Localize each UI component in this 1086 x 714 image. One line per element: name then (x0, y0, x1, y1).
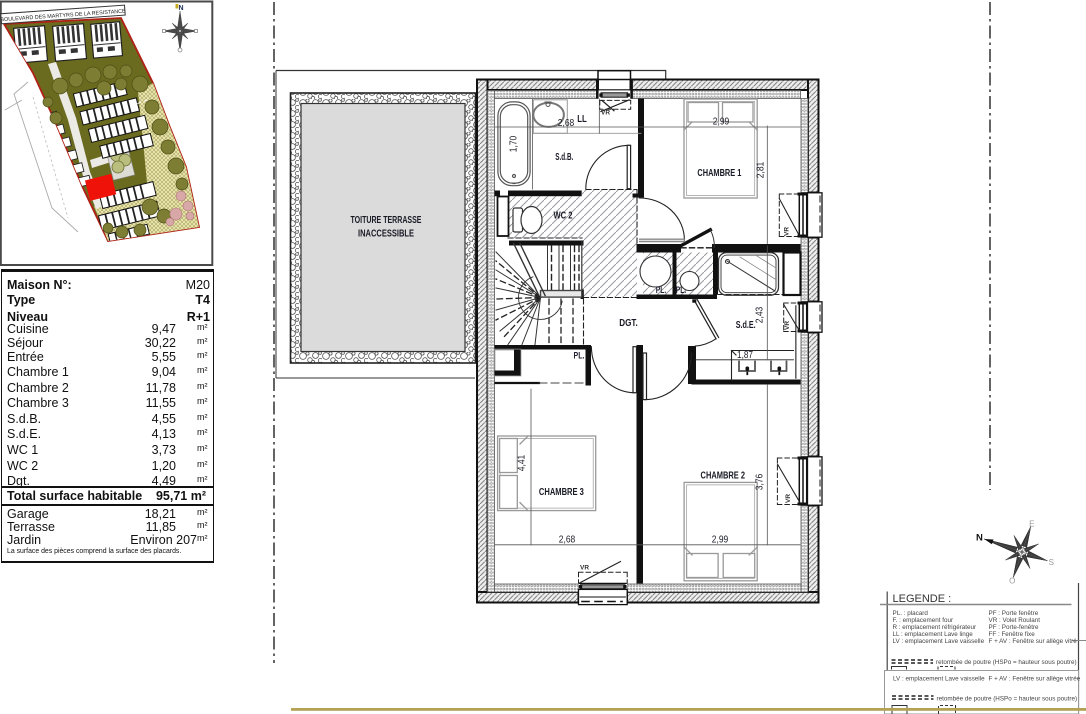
svg-text:FF : Fenêtre fixe: FF : Fenêtre fixe (989, 631, 1036, 638)
svg-text:PF : Porte-fenêtre: PF : Porte-fenêtre (989, 624, 1040, 631)
svg-text:retombée de poutre (HSPo = hau: retombée de poutre (HSPo = hauteur sous … (936, 659, 1077, 666)
svg-text:INACCESSIBLE: INACCESSIBLE (358, 229, 414, 240)
svg-text:F + AV : Fenêtre sur allège vi: F + AV : Fenêtre sur allège vitré (989, 638, 1078, 645)
svg-text:N: N (976, 532, 983, 543)
svg-text:LV : emplacement Lave vaissell: LV : emplacement Lave vaisselle (893, 676, 985, 683)
svg-text:PF : Porte fenêtre: PF : Porte fenêtre (989, 610, 1039, 617)
svg-text:R : emplacement réfrigérateur: R : emplacement réfrigérateur (893, 624, 977, 631)
svg-text:4,41: 4,41 (516, 455, 528, 472)
svg-text:O: O (1009, 576, 1015, 585)
svg-text:2,68: 2,68 (558, 117, 575, 129)
svg-text:2,99: 2,99 (712, 533, 729, 545)
svg-text:VR: VR (580, 564, 589, 571)
svg-text:N: N (178, 5, 183, 12)
svg-text:LL : emplacement Lave linge: LL : emplacement Lave linge (893, 631, 974, 638)
svg-text:CHAMBRE 3: CHAMBRE 3 (539, 487, 584, 498)
svg-text:CHAMBRE 2: CHAMBRE 2 (701, 470, 746, 481)
svg-text:2,43: 2,43 (754, 307, 766, 324)
svg-text:F + AV : Fenêtre sur allège vi: F + AV : Fenêtre sur allège vitrée (989, 676, 1081, 683)
svg-text:VR: VR (784, 227, 791, 236)
svg-text:DGT.: DGT. (619, 318, 638, 329)
svg-text:3,76: 3,76 (754, 474, 766, 491)
svg-text:PL. : placard: PL. : placard (893, 610, 929, 617)
svg-text:S.d.B.: S.d.B. (555, 152, 573, 163)
svg-text:PL.: PL. (656, 285, 667, 295)
svg-text:LV : emplacement Lave vaissell: LV : emplacement Lave vaisselle (893, 638, 985, 645)
svg-text:E: E (1029, 520, 1034, 529)
svg-text:TOITURE TERRASSE: TOITURE TERRASSE (351, 215, 422, 226)
svg-text:F. : emplacement four: F. : emplacement four (893, 617, 954, 624)
svg-text:WC 2: WC 2 (554, 211, 573, 222)
svg-text:PL.: PL. (676, 285, 687, 295)
svg-text:VR: VR (784, 321, 791, 330)
svg-text:2,81: 2,81 (755, 162, 767, 179)
svg-text:LL: LL (577, 114, 587, 125)
svg-text:1,87: 1,87 (737, 349, 753, 361)
svg-text:CHAMBRE 1: CHAMBRE 1 (697, 168, 741, 179)
svg-text:2,68: 2,68 (559, 533, 576, 545)
svg-text:S: S (1049, 558, 1054, 567)
svg-text:retombée de poutre (HSPo = hau: retombée de poutre (HSPo = hauteur sous … (937, 696, 1078, 703)
svg-text:2,99: 2,99 (713, 116, 730, 128)
svg-text:LEGENDE :: LEGENDE : (893, 593, 952, 605)
svg-text:VR: VR (601, 110, 610, 117)
svg-text:PL.: PL. (574, 351, 585, 362)
svg-text:VR : Volet Roulant: VR : Volet Roulant (989, 617, 1041, 624)
svg-text:1,70: 1,70 (508, 136, 520, 153)
svg-text:VR: VR (785, 494, 792, 503)
